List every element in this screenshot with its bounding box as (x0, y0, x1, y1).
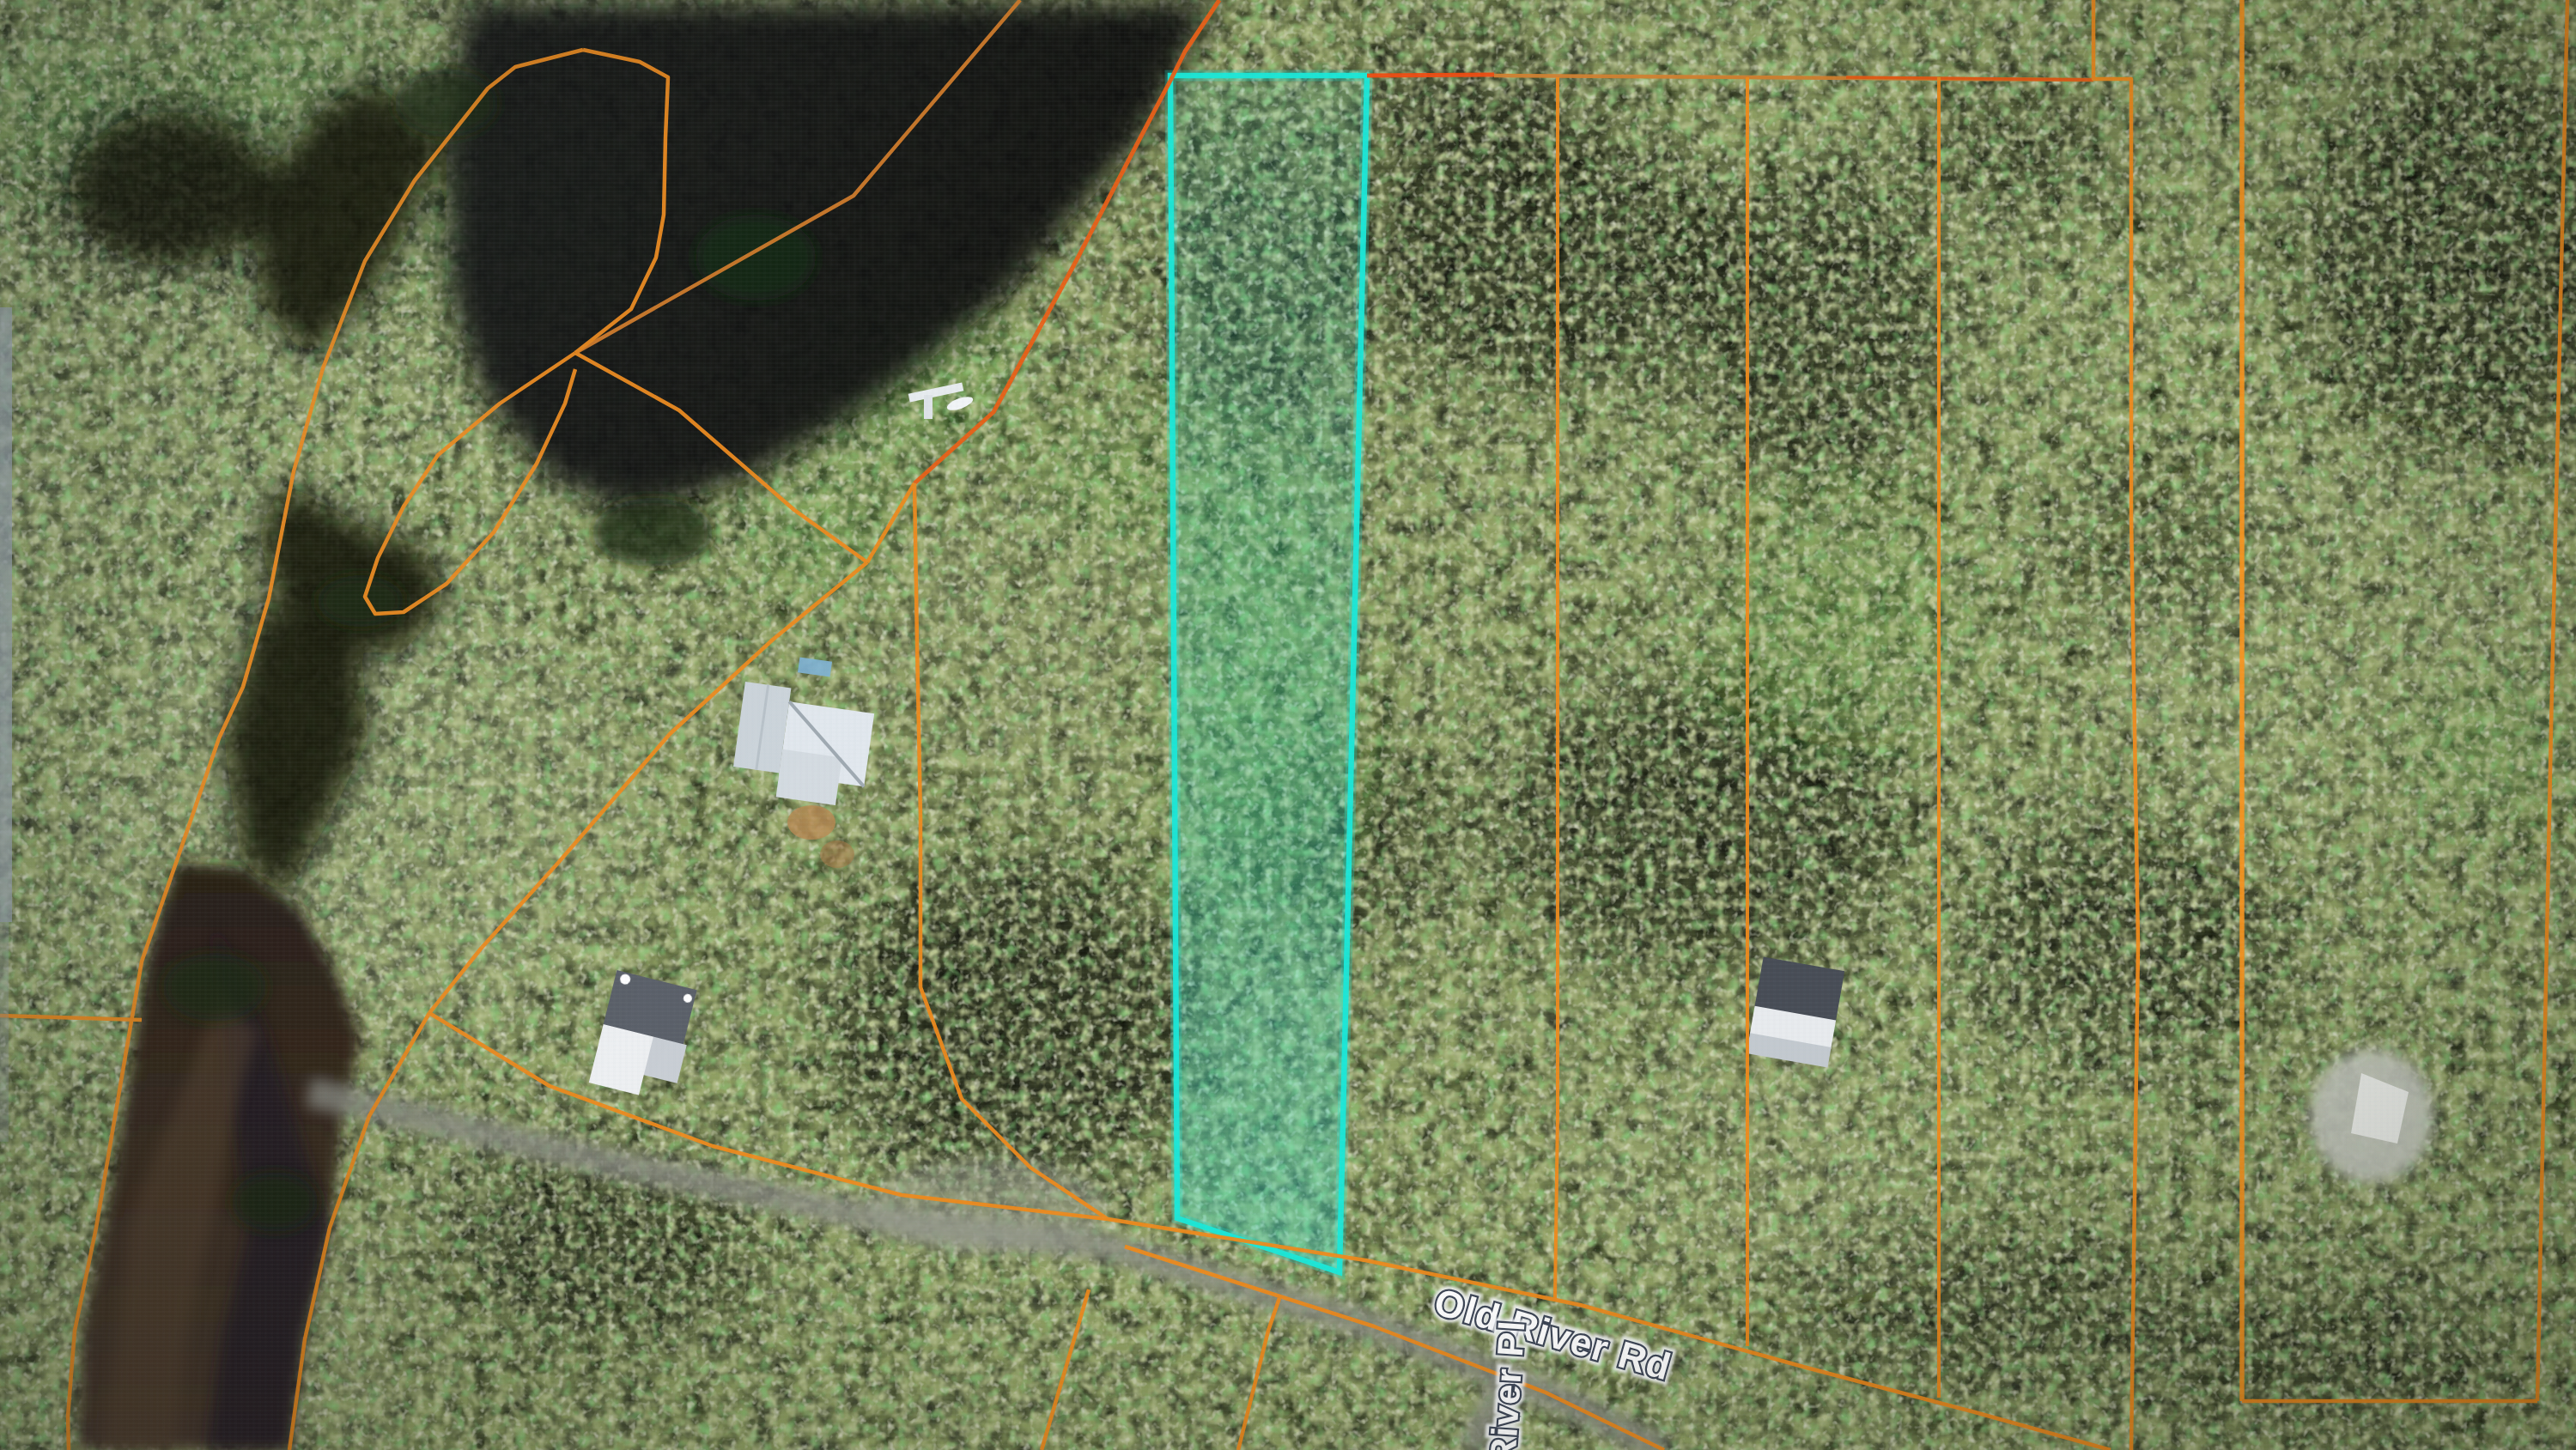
house-east (1747, 957, 1844, 1068)
screen-edge-glare-lower (0, 919, 9, 1142)
map-canvas[interactable]: Old River Rd Old River Rd Old River Rd R… (0, 0, 2576, 1450)
aerial-imagery-layer (0, 0, 2576, 1450)
clearing-structure-east (2310, 1049, 2433, 1183)
selected-parcel-highlight[interactable] (1170, 76, 1367, 1272)
screen-edge-glare (0, 307, 12, 922)
